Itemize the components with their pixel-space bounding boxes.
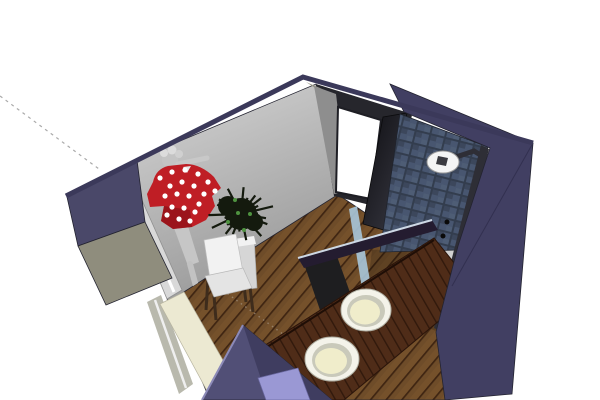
viewport-canvas[interactable] <box>0 0 600 400</box>
shower-control <box>441 234 446 239</box>
sink-basin-2[interactable] <box>305 337 359 381</box>
shower-control <box>445 220 450 225</box>
sink-basin-1[interactable] <box>341 289 391 331</box>
